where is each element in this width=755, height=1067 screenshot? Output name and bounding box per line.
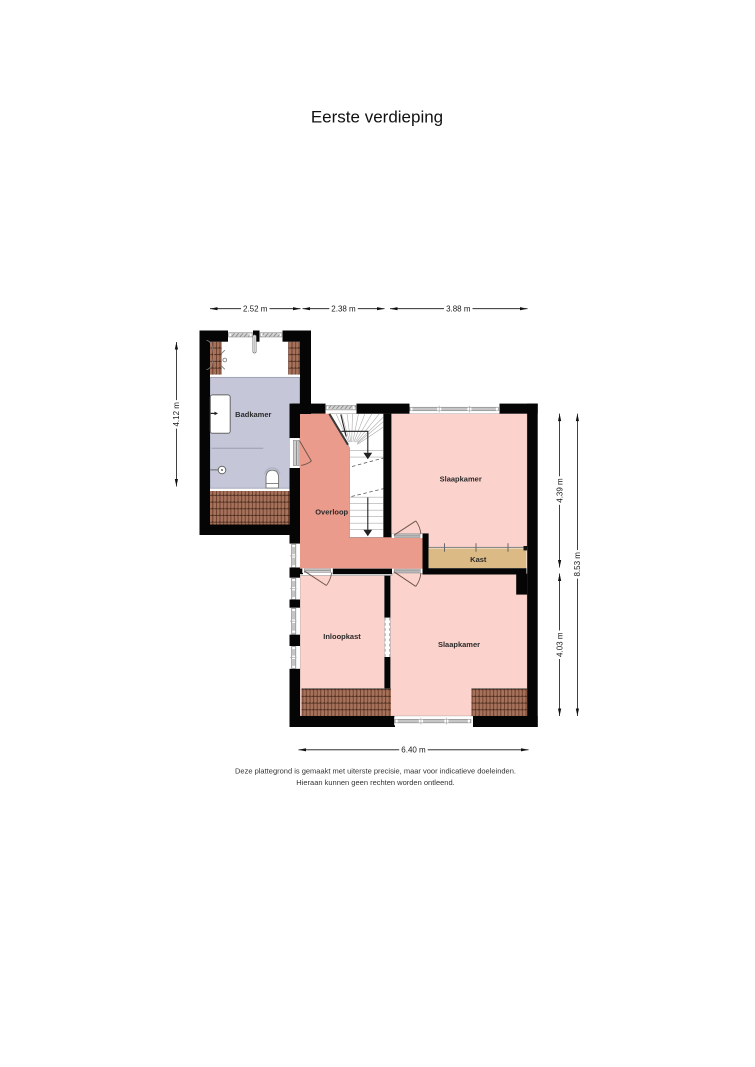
svg-text:6.40 m: 6.40 m [401,746,426,755]
svg-text:2.52 m: 2.52 m [243,305,268,314]
svg-text:Slaapkamer: Slaapkamer [440,474,482,483]
svg-text:Eerste verdieping: Eerste verdieping [311,108,443,127]
svg-text:Slaapkamer: Slaapkamer [438,640,480,649]
svg-text:Kast: Kast [470,555,487,564]
svg-text:4.03 m: 4.03 m [555,632,564,657]
svg-text:Badkamer: Badkamer [235,410,271,419]
svg-text:3.88 m: 3.88 m [446,305,471,314]
svg-text:Hieraan kunnen geen rechten wo: Hieraan kunnen geen rechten worden ontle… [296,778,454,787]
svg-text:4.39 m: 4.39 m [555,478,564,503]
svg-text:Overloop: Overloop [315,507,348,516]
svg-text:Inloopkast: Inloopkast [323,632,361,641]
svg-text:2.38 m: 2.38 m [331,305,356,314]
svg-text:8.53 m: 8.53 m [573,552,582,577]
svg-text:Deze plattegrond is gemaakt me: Deze plattegrond is gemaakt met uiterste… [235,767,516,776]
svg-text:4.12 m: 4.12 m [172,402,181,427]
